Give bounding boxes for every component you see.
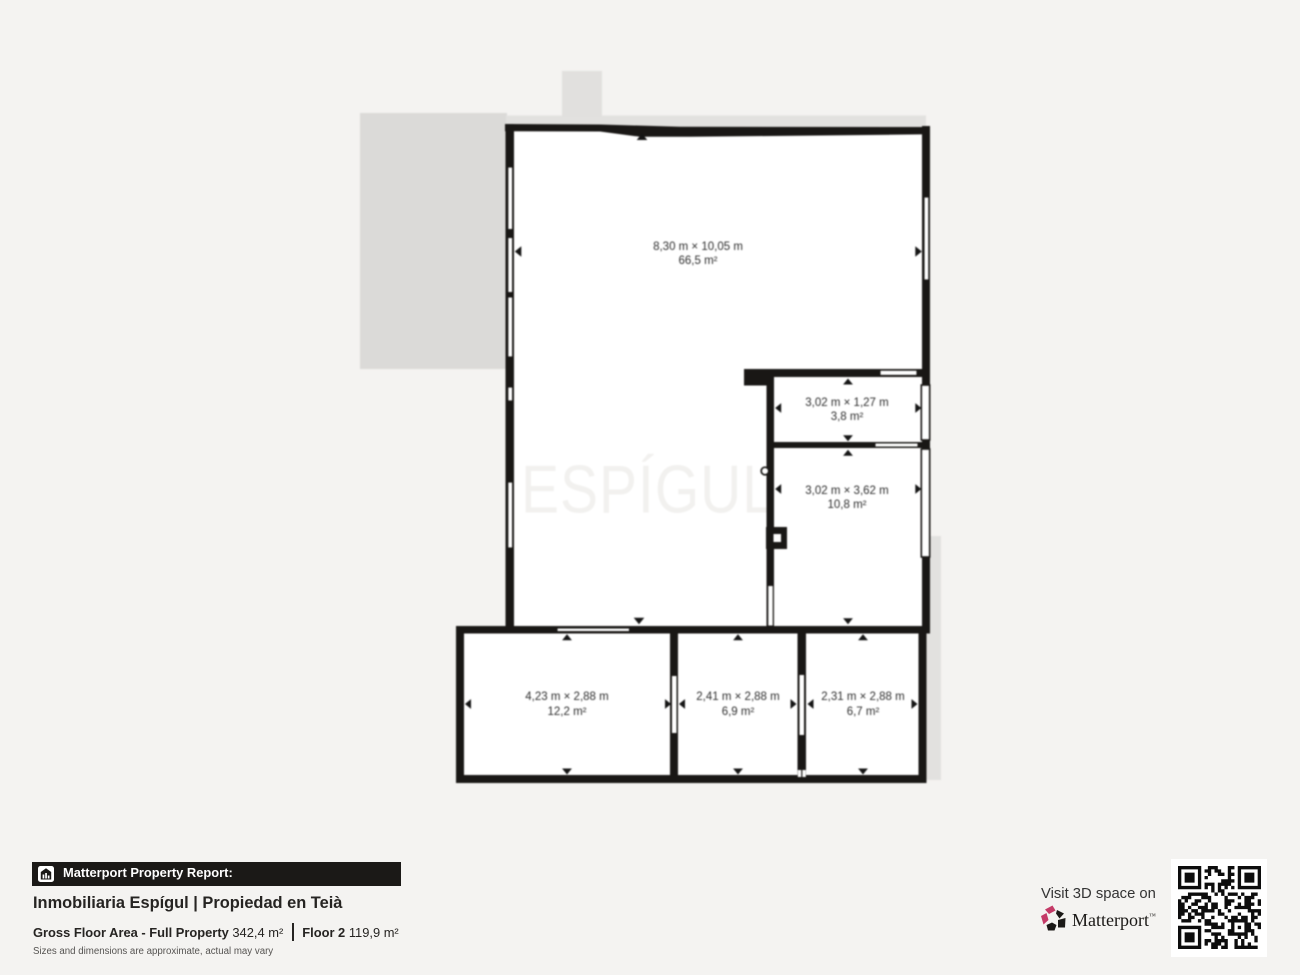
svg-text:Matterport Property Report:: Matterport Property Report: [63, 865, 233, 880]
